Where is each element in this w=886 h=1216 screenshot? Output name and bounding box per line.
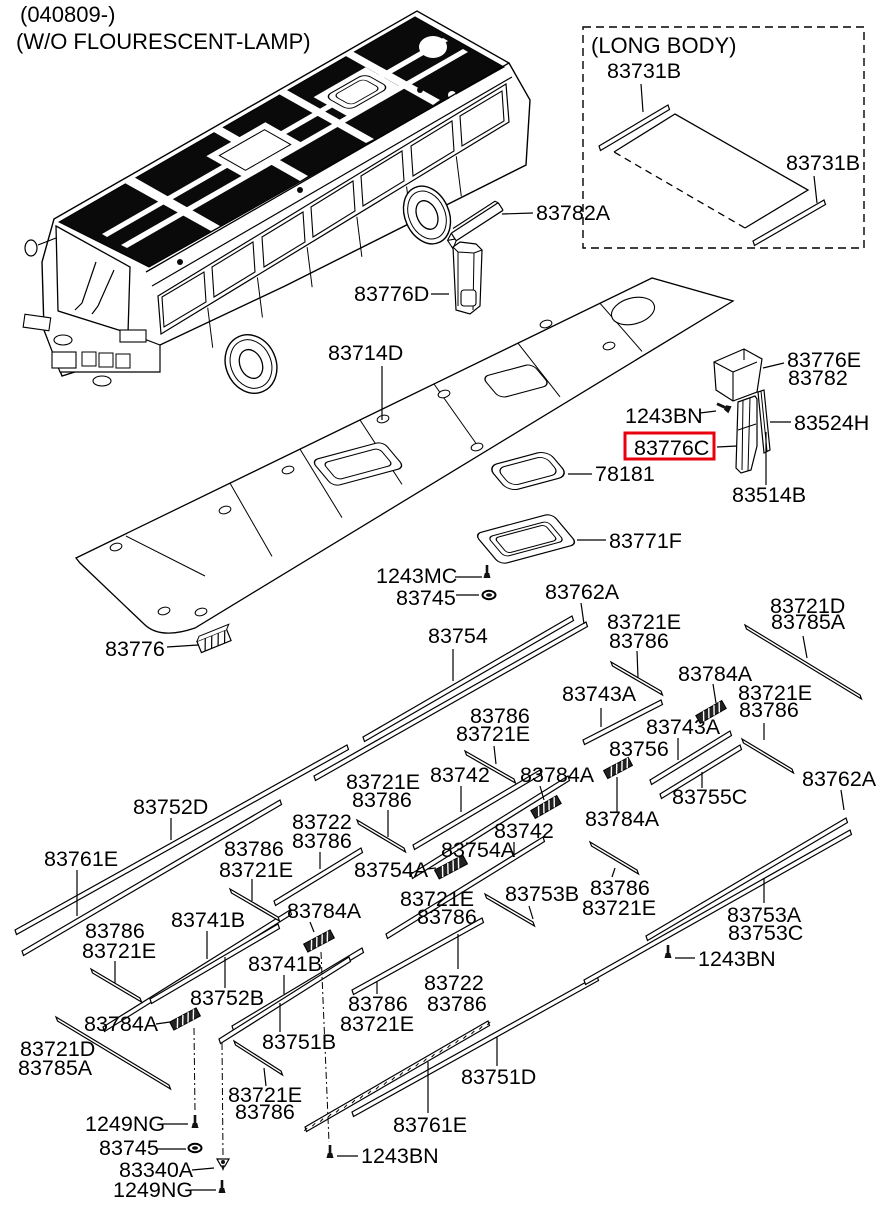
svg-text:83752D: 83752D: [133, 795, 208, 819]
svg-text:83742: 83742: [430, 763, 490, 787]
svg-text:83776D: 83776D: [354, 282, 429, 306]
svg-text:1249NG: 1249NG: [85, 1112, 165, 1136]
svg-text:83776C: 83776C: [634, 436, 709, 460]
svg-text:83761E: 83761E: [44, 847, 118, 871]
svg-text:83514B: 83514B: [732, 483, 806, 507]
svg-text:83786: 83786: [739, 698, 799, 722]
svg-text:83721E: 83721E: [582, 896, 656, 920]
svg-text:83743A: 83743A: [562, 682, 637, 706]
svg-text:1243BN: 1243BN: [625, 404, 703, 428]
svg-text:1249NG: 1249NG: [113, 1178, 193, 1202]
svg-text:83753B: 83753B: [505, 882, 579, 906]
svg-text:83714D: 83714D: [328, 341, 403, 365]
svg-text:1243BN: 1243BN: [361, 1144, 439, 1168]
svg-text:83784A: 83784A: [520, 763, 595, 787]
svg-text:83762A: 83762A: [802, 767, 877, 791]
svg-text:83784A: 83784A: [678, 662, 753, 686]
svg-text:83786: 83786: [427, 992, 487, 1016]
svg-text:83754A: 83754A: [354, 858, 429, 882]
svg-text:83745: 83745: [99, 1136, 159, 1160]
svg-text:(W/O FLOURESCENT-LAMP): (W/O FLOURESCENT-LAMP): [16, 29, 311, 54]
svg-text:83784A: 83784A: [84, 1012, 159, 1036]
svg-text:83745: 83745: [396, 586, 456, 610]
svg-text:83786: 83786: [292, 829, 352, 853]
svg-text:83741B: 83741B: [171, 908, 245, 932]
svg-text:83784A: 83784A: [585, 807, 660, 831]
svg-text:83754A: 83754A: [441, 838, 516, 862]
svg-text:83752B: 83752B: [190, 986, 264, 1010]
svg-text:83721E: 83721E: [456, 722, 530, 746]
svg-text:83721E: 83721E: [219, 858, 293, 882]
svg-text:83786: 83786: [609, 629, 669, 653]
svg-text:83731B: 83731B: [607, 59, 681, 83]
svg-text:83755C: 83755C: [672, 785, 747, 809]
svg-text:83785A: 83785A: [771, 610, 846, 634]
svg-text:83771F: 83771F: [609, 529, 682, 553]
svg-text:83782: 83782: [788, 366, 848, 390]
svg-text:83782A: 83782A: [536, 201, 611, 225]
svg-text:83721E: 83721E: [340, 1012, 414, 1036]
svg-text:83761E: 83761E: [393, 1113, 467, 1137]
svg-text:78181: 78181: [595, 462, 655, 486]
svg-text:1243BN: 1243BN: [698, 947, 776, 971]
svg-text:83786: 83786: [352, 788, 412, 812]
svg-text:83721E: 83721E: [82, 939, 156, 963]
svg-text:83754: 83754: [428, 624, 488, 648]
svg-text:83762A: 83762A: [545, 580, 620, 604]
svg-text:83731B: 83731B: [786, 151, 860, 175]
svg-text:83753C: 83753C: [728, 921, 803, 945]
svg-text:83785A: 83785A: [18, 1056, 93, 1080]
svg-text:83786: 83786: [235, 1100, 295, 1124]
svg-text:83741B: 83741B: [248, 952, 322, 976]
svg-text:83751D: 83751D: [461, 1065, 536, 1089]
svg-text:(LONG BODY): (LONG BODY): [591, 33, 736, 58]
svg-text:1243MC: 1243MC: [376, 564, 457, 588]
svg-text:(040809-): (040809-): [20, 2, 115, 27]
svg-text:83756: 83756: [609, 737, 669, 761]
svg-text:83524H: 83524H: [794, 411, 869, 435]
svg-text:83784A: 83784A: [287, 899, 362, 923]
svg-text:83776: 83776: [105, 637, 165, 661]
